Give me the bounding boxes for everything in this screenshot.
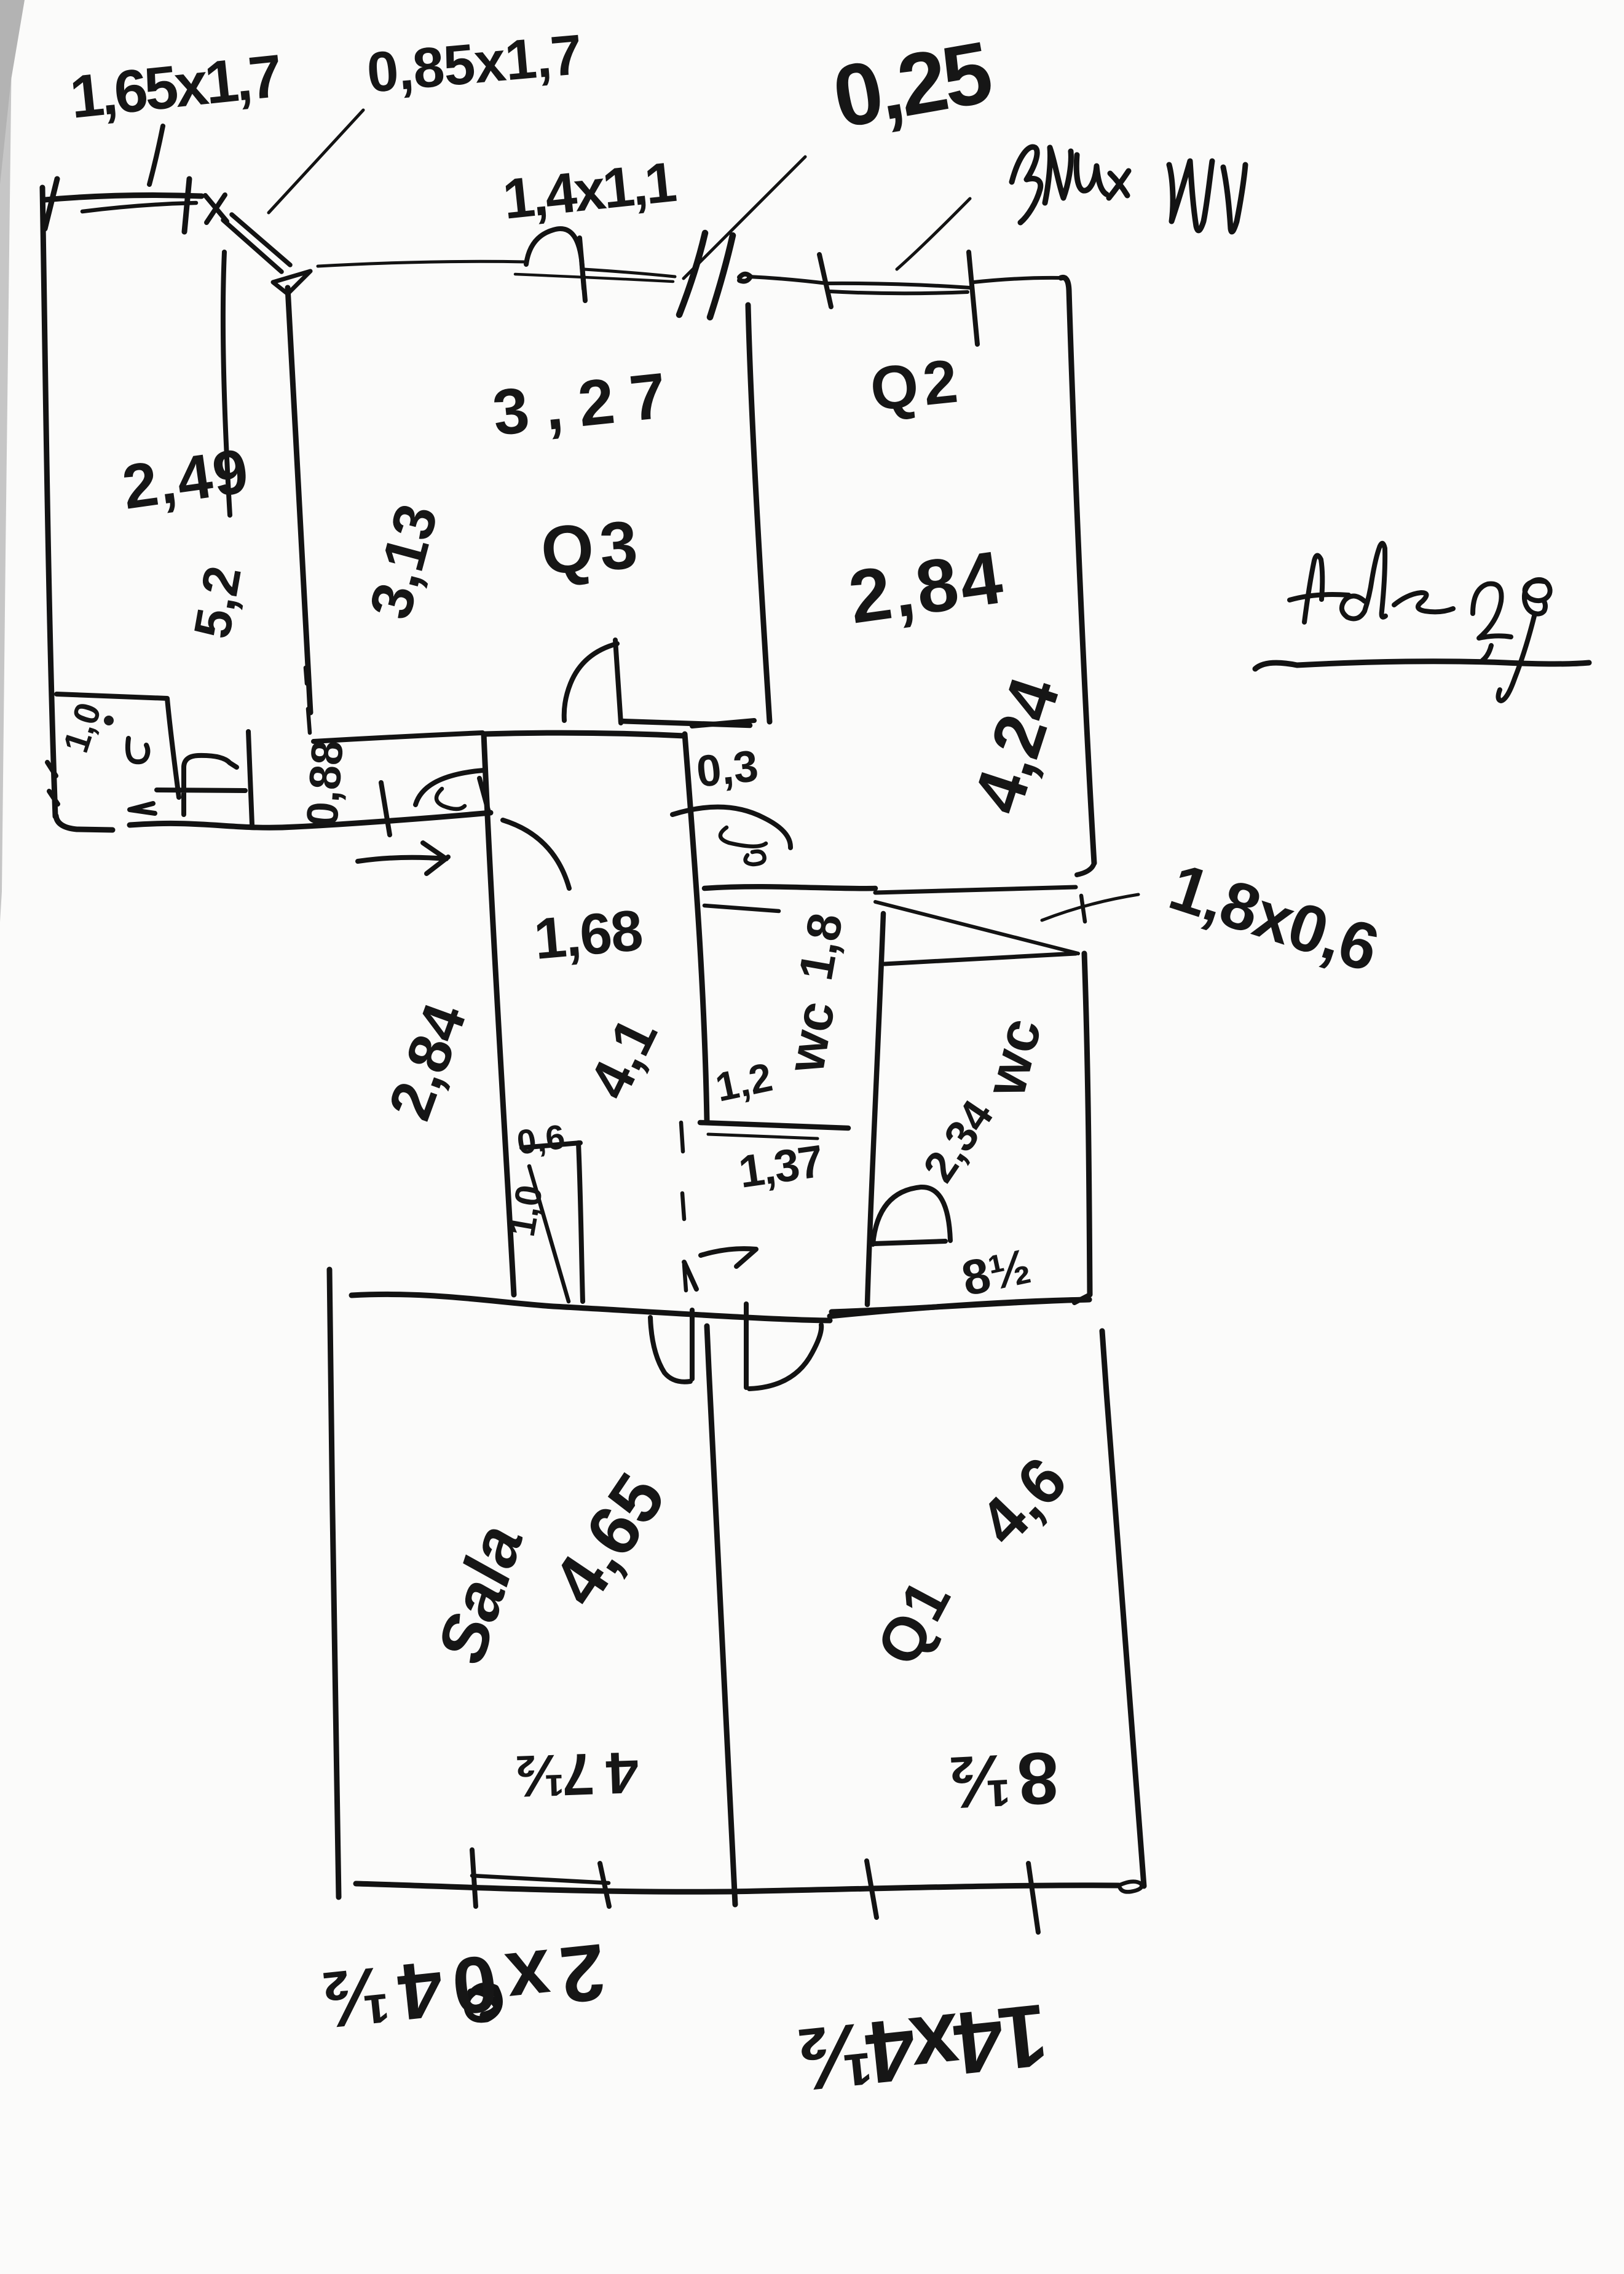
svg-text:Q2: Q2 [867, 346, 966, 424]
svg-text:wc: wc [776, 997, 846, 1078]
svg-text:5,2: 5,2 [183, 562, 252, 642]
svg-text:4 7½: 4 7½ [516, 1739, 640, 1809]
svg-text:8½: 8½ [939, 1736, 1061, 1825]
svg-text:0,88: 0,88 [298, 739, 353, 828]
svg-text:0,6: 0,6 [514, 1117, 567, 1162]
svg-text:1,0: 1,0 [501, 1182, 550, 1239]
svg-text:1,8: 1,8 [788, 909, 853, 984]
svg-text:1,68: 1,68 [532, 898, 644, 971]
svg-text:Q3: Q3 [538, 507, 646, 589]
svg-text:0,3: 0,3 [694, 741, 760, 797]
